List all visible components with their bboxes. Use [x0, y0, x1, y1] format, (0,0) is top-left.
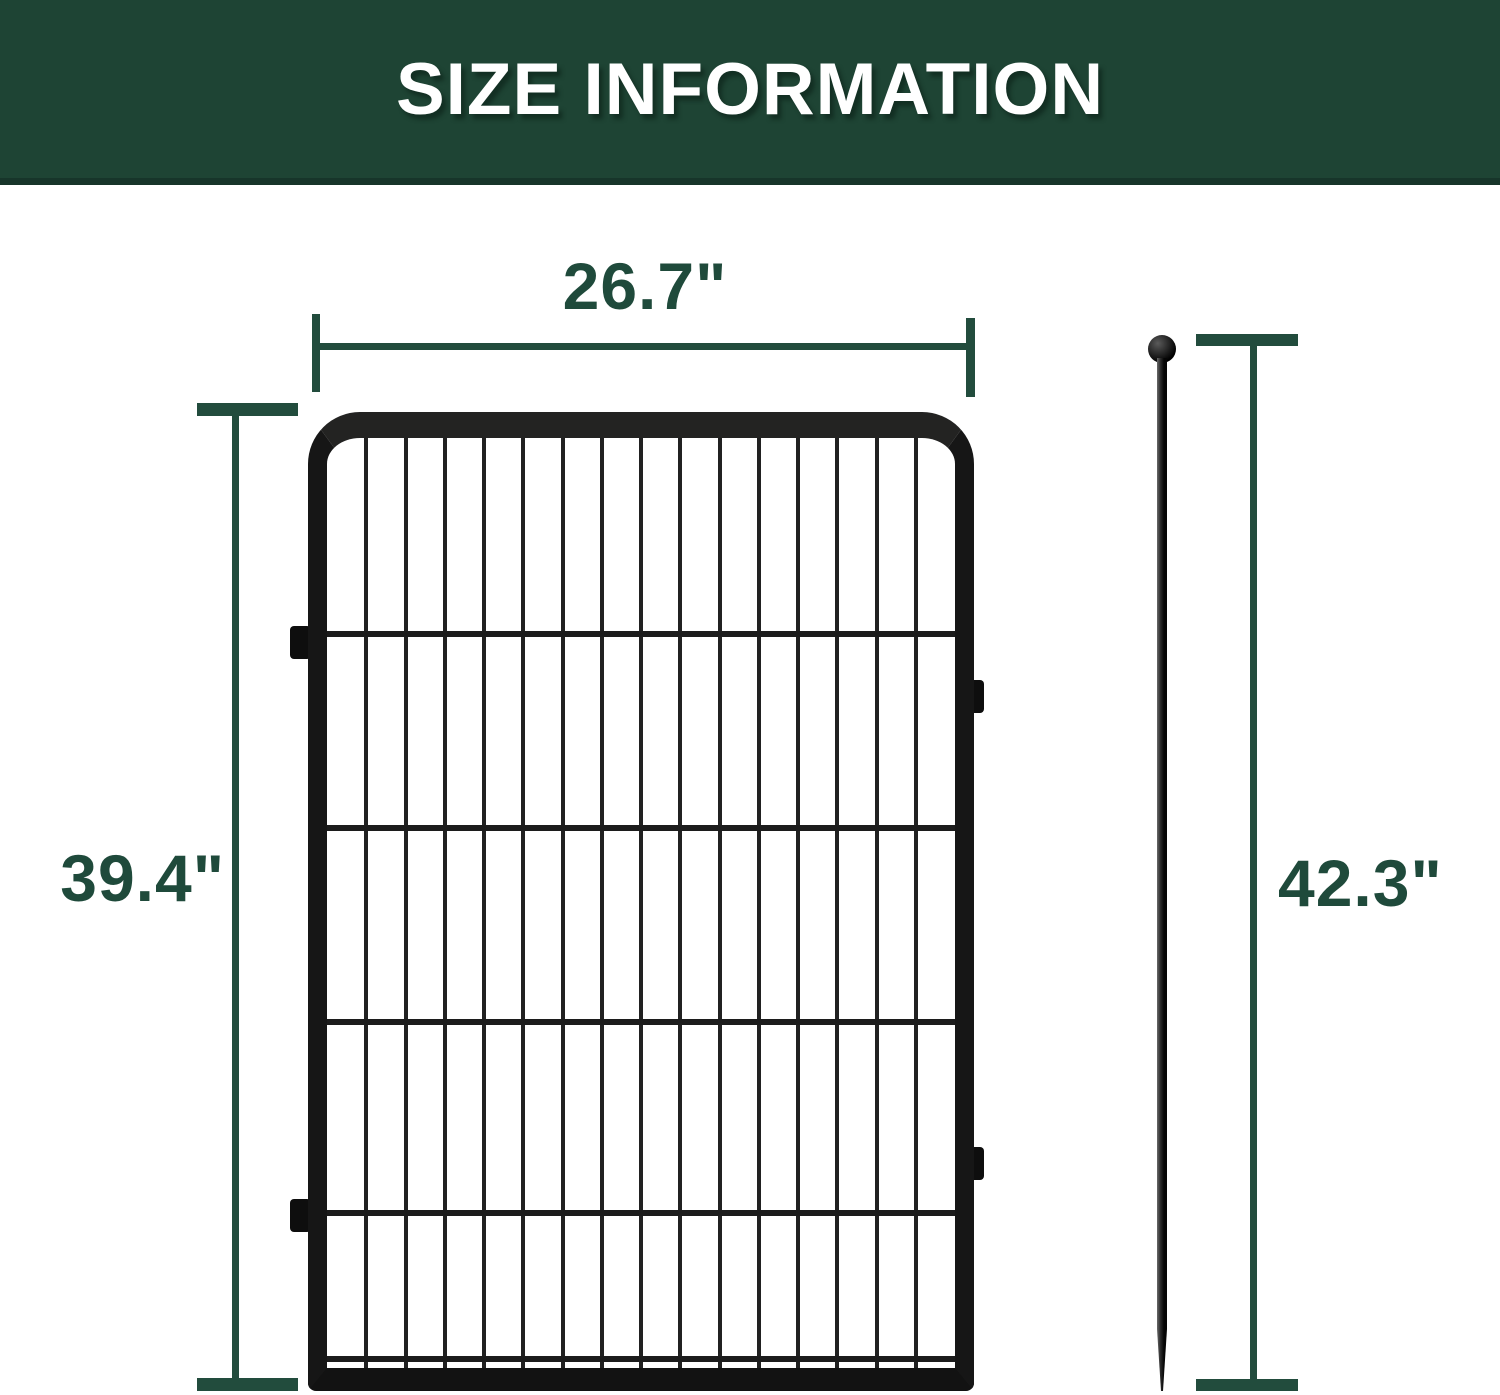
width-dimension-tick-right	[966, 318, 975, 397]
fence-vertical-bar	[639, 438, 643, 1368]
width-dimension-line	[316, 343, 974, 350]
fence-vertical-bar	[443, 438, 447, 1368]
height-dimension-label: 39.4"	[10, 840, 225, 916]
fence-vertical-bar	[914, 438, 918, 1368]
fence-vertical-bar	[796, 438, 800, 1368]
width-dimension-label: 26.7"	[365, 248, 925, 324]
fence-vertical-bar	[364, 438, 368, 1368]
fence-vertical-bar	[757, 438, 761, 1368]
fence-panel	[308, 412, 974, 1391]
header-banner: SIZE INFORMATION	[0, 0, 1500, 185]
fence-vertical-bar	[482, 438, 486, 1368]
fence-vertical-bar	[521, 438, 525, 1368]
height-dimension-line	[232, 403, 239, 1391]
fence-vertical-bar	[875, 438, 879, 1368]
stake-rod	[1157, 358, 1167, 1391]
fence-horizontal-rail	[327, 1019, 955, 1025]
page-title: SIZE INFORMATION	[396, 48, 1104, 131]
size-information-diagram: SIZE INFORMATION 26.7" 39.4" 42.3"	[0, 0, 1500, 1395]
fence-vertical-bar	[678, 438, 682, 1368]
fence-vertical-bar	[404, 438, 408, 1368]
fence-vertical-bar	[835, 438, 839, 1368]
stake-dimension-label: 42.3"	[1278, 845, 1500, 921]
fence-horizontal-rail	[327, 825, 955, 831]
width-dimension-tick-left	[312, 314, 320, 392]
stake-dimension-line	[1250, 334, 1257, 1391]
stake-dimension-cap-bottom	[1196, 1379, 1298, 1391]
fence-horizontal-rail	[327, 1210, 955, 1216]
fence-vertical-bar	[718, 438, 722, 1368]
height-dimension-cap-bottom	[197, 1378, 298, 1391]
fence-horizontal-rail	[327, 631, 955, 637]
height-dimension-cap-top	[197, 403, 298, 416]
stake-dimension-cap-top	[1196, 334, 1298, 346]
fence-vertical-bar	[561, 438, 565, 1368]
fence-vertical-bar	[600, 438, 604, 1368]
fence-horizontal-rail	[327, 1356, 955, 1362]
fence-interior	[327, 438, 955, 1368]
